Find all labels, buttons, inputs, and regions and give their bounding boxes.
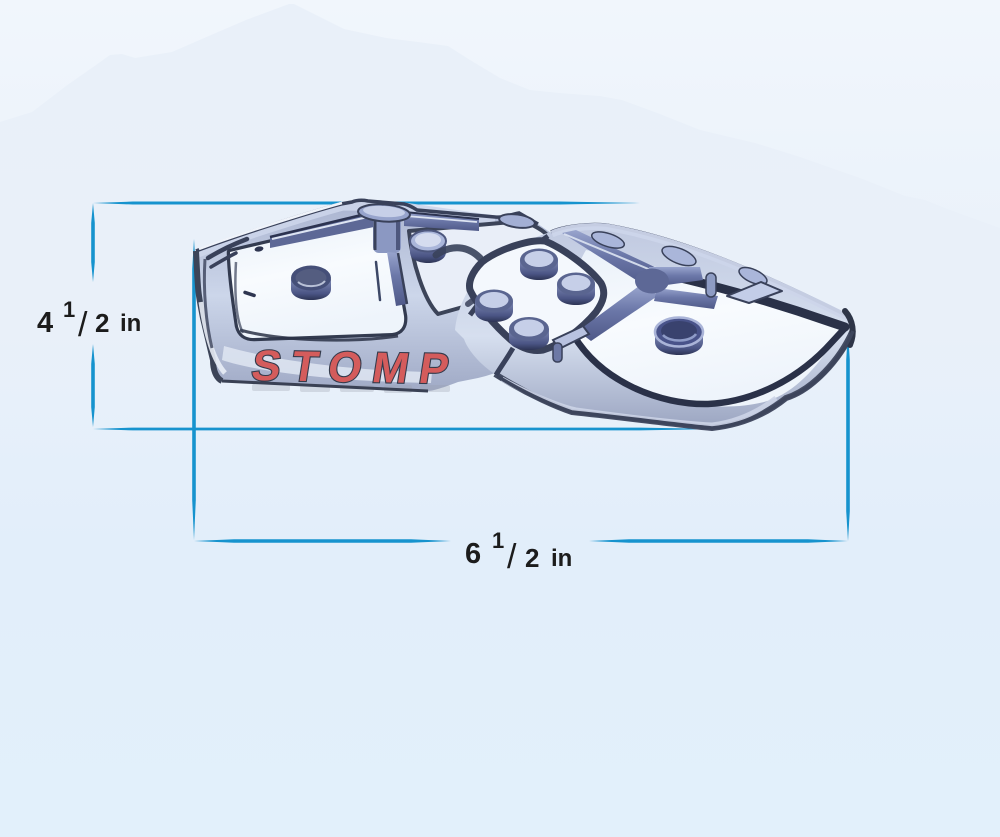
svg-text:2: 2 [525, 543, 539, 573]
svg-text:1: 1 [63, 297, 75, 322]
svg-text:6: 6 [465, 538, 481, 570]
svg-text:/: / [78, 306, 88, 344]
svg-text:in: in [551, 545, 572, 572]
svg-text:1: 1 [492, 528, 504, 553]
svg-text:2: 2 [95, 308, 109, 338]
svg-text:4: 4 [37, 307, 53, 339]
svg-text:/: / [507, 538, 517, 576]
svg-text:in: in [120, 310, 141, 337]
